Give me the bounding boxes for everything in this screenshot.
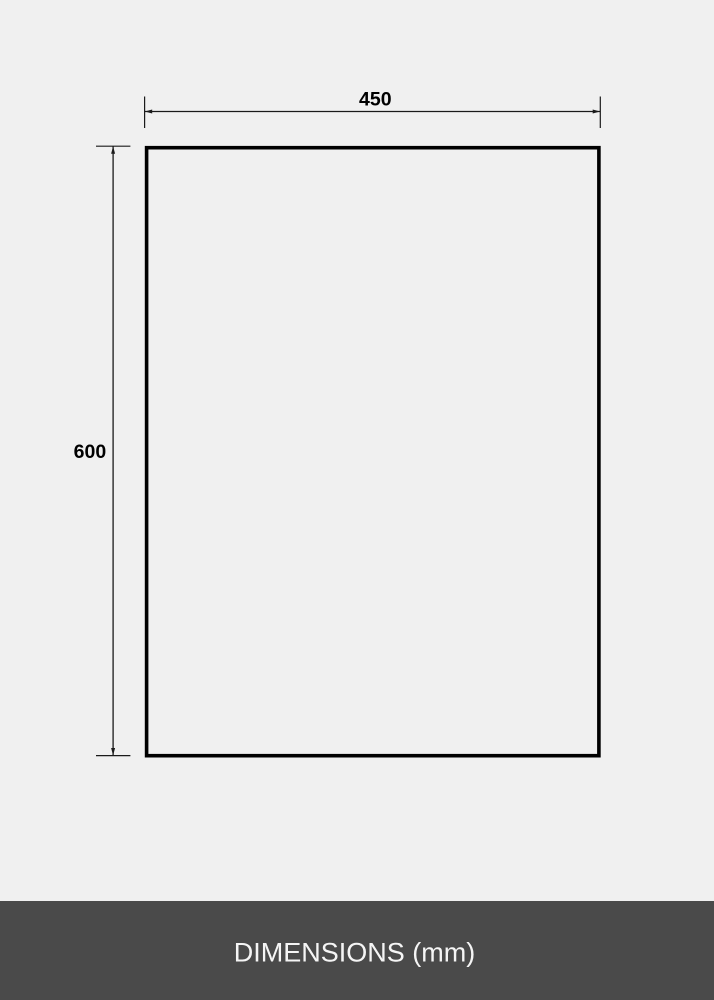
svg-text:450: 450 <box>359 89 392 111</box>
svg-text:600: 600 <box>74 441 107 463</box>
svg-text:DIMENSIONS (mm): DIMENSIONS (mm) <box>234 938 475 968</box>
